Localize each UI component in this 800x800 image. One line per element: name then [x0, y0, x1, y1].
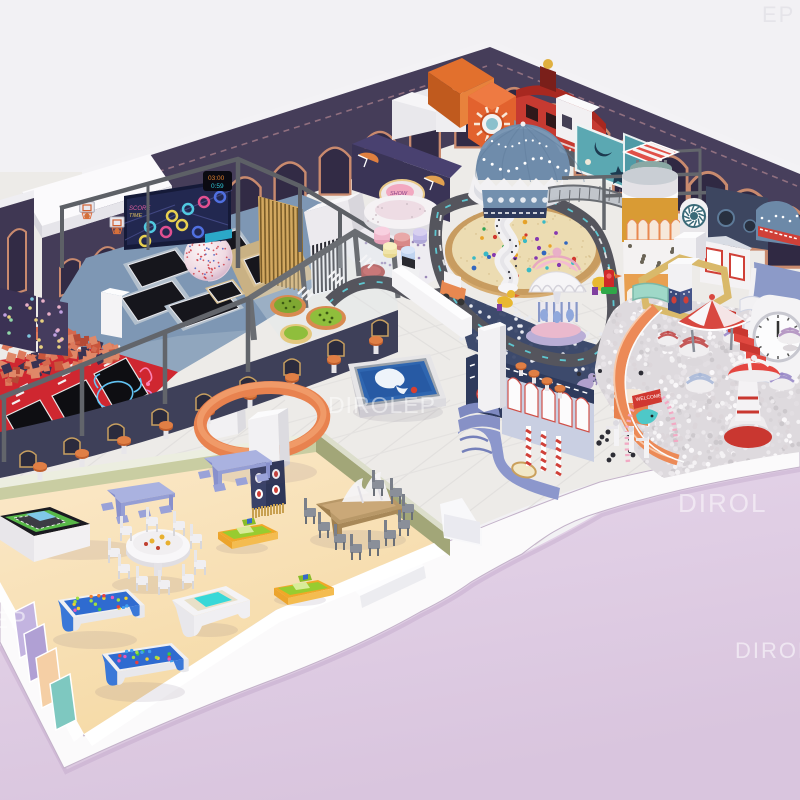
svg-text:EP: EP — [0, 607, 28, 634]
svg-text:DIROLEP: DIROLEP — [328, 392, 436, 418]
svg-text:TIME: TIME — [129, 213, 142, 219]
svg-text:03:00: 03:00 — [208, 175, 225, 182]
svg-text:0:59: 0:59 — [211, 183, 224, 190]
svg-text:DIROL: DIROL — [678, 488, 767, 518]
svg-text:DIROLE: DIROLE — [735, 638, 800, 663]
svg-text:EP: EP — [762, 2, 795, 27]
